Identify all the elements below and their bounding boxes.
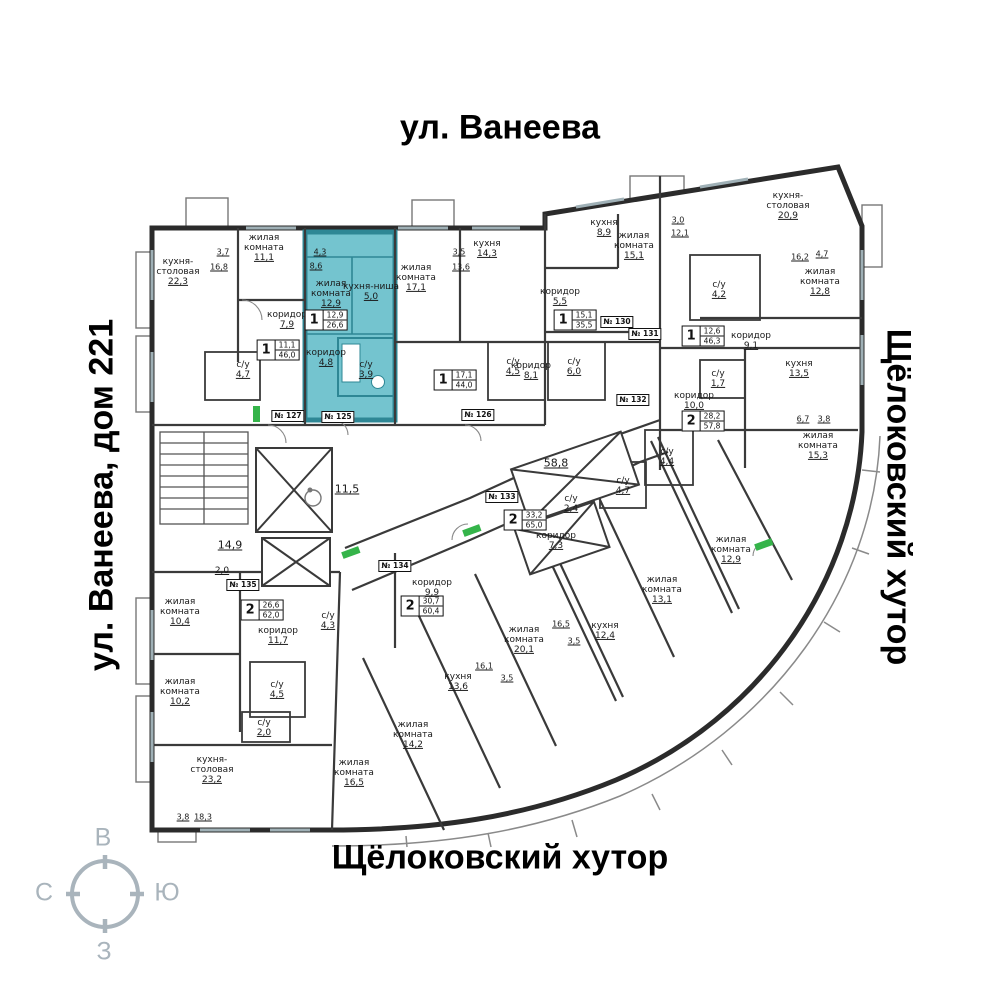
lobby-area-label: 11,5 — [335, 483, 360, 496]
room-label: жилая комната14,2 — [380, 720, 446, 750]
compass-south-letter: Ю — [154, 879, 179, 908]
dimension-label: 3,8 — [177, 813, 190, 822]
dimension-label: 3,5 — [501, 674, 514, 683]
compass-rose — [66, 855, 144, 933]
plate-131: № 131 — [628, 328, 661, 340]
badge-living: 28,2 — [701, 412, 724, 422]
room-label: с/у4,3 — [321, 611, 335, 631]
room-label: с/у4,5 — [506, 357, 520, 377]
dimension-label: 4,3 — [314, 248, 327, 257]
room-label: коридор9,1 — [731, 331, 771, 351]
badge-total: 46,3 — [701, 337, 724, 346]
room-label: кухня12,4 — [591, 621, 618, 641]
badge-living: 33,2 — [523, 511, 546, 521]
badge-rooms: 1 — [258, 341, 276, 360]
corridor-area-label: 58,8 — [544, 457, 569, 470]
room-label: жилая комната16,5 — [321, 758, 387, 788]
badge-133: 2 33,265,0 — [504, 510, 547, 531]
badge-rooms: 1 — [435, 371, 453, 390]
room-label: с/у2,0 — [257, 718, 271, 738]
room-label: жилая комната17,1 — [383, 263, 449, 293]
room-label: кухня13,6 — [444, 672, 471, 692]
room-label: кухня13,5 — [785, 359, 812, 379]
room-label: с/у3,9 — [359, 360, 373, 380]
badge-127: 1 11,146,0 — [257, 340, 300, 361]
badge-total: 26,6 — [324, 321, 347, 330]
compass-north-letter: С — [35, 879, 53, 908]
plate-134: № 134 — [378, 560, 411, 572]
badge-rooms: 2 — [683, 412, 701, 431]
plate-126: № 126 — [461, 409, 494, 421]
room-label: кухня14,3 — [473, 239, 500, 259]
badge-rooms: 2 — [242, 601, 260, 620]
plate-135: № 135 — [226, 579, 259, 591]
room-label: жилая комната10,2 — [147, 677, 213, 707]
badge-total: 65,0 — [523, 521, 546, 530]
compass-east-letter: В — [95, 824, 112, 853]
room-label: коридор9,9 — [412, 578, 452, 598]
dimension-label: 16,8 — [210, 263, 228, 272]
room-label: коридор4,8 — [306, 348, 346, 368]
dimension-label: 3,0 — [672, 216, 685, 225]
badge-living: 26,6 — [260, 601, 283, 611]
room-label: с/у4,4 — [660, 447, 674, 467]
floor-plan: ул. Ванеева ул. Ванеева, дом 221 Щёлоков… — [0, 0, 1000, 1000]
room-label: жилая комната13,1 — [629, 575, 695, 605]
dimension-label: 13,6 — [452, 263, 470, 272]
badge-126: 1 17,144,0 — [434, 370, 477, 391]
room-label: коридор7,9 — [267, 310, 307, 330]
room-label: кухня-столовая20,9 — [755, 191, 821, 221]
room-label: жилая комната20,1 — [491, 625, 557, 655]
dimension-label: 18,3 — [194, 813, 212, 822]
street-label-left: ул. Ванеева, дом 221 — [83, 319, 122, 671]
badge-living: 12,9 — [324, 311, 347, 321]
room-label: жилая комната10,4 — [147, 597, 213, 627]
dimension-label: 3,8 — [818, 415, 831, 424]
badge-130: 1 15,135,5 — [554, 310, 597, 331]
room-label: с/у1,7 — [711, 369, 725, 389]
room-label: коридор11,7 — [258, 626, 298, 646]
plate-132: № 132 — [616, 394, 649, 406]
badge-total: 35,5 — [573, 321, 596, 330]
badge-living: 17,1 — [453, 371, 476, 381]
dimension-label: 12,1 — [671, 229, 689, 238]
room-label: коридор10,0 — [674, 391, 714, 411]
badge-131: 1 12,646,3 — [682, 326, 725, 347]
room-label: жилая комната12,9 — [698, 535, 764, 565]
badge-rooms: 1 — [306, 311, 324, 330]
landing-area-label: 2,0 — [215, 566, 229, 576]
room-label: жилая комната15,3 — [785, 431, 851, 461]
street-label-bottom: Щёлоковский хутор — [332, 839, 668, 878]
badge-135: 2 26,662,0 — [241, 600, 284, 621]
badge-living: 12,6 — [701, 327, 724, 337]
room-label: с/у4,7 — [236, 360, 250, 380]
badge-rooms: 2 — [505, 511, 523, 530]
room-label: кухня-столовая23,2 — [179, 755, 245, 785]
room-label: коридор7,3 — [536, 531, 576, 551]
room-label: жилая комната15,1 — [601, 231, 667, 261]
stairs-area-label: 14,9 — [218, 539, 243, 552]
plate-125: № 125 — [321, 411, 354, 423]
room-label: с/у2,4 — [564, 494, 578, 514]
dimension-label: 3,5 — [453, 248, 466, 257]
badge-rooms: 1 — [555, 311, 573, 330]
room-label: с/у4,5 — [270, 680, 284, 700]
room-label: с/у4,7 — [616, 476, 630, 496]
badge-total: 46,0 — [276, 351, 299, 360]
badge-134: 2 30,760,4 — [401, 596, 444, 617]
room-label: кухня-столовая22,3 — [145, 257, 211, 287]
street-label-top: ул. Ванеева — [400, 109, 600, 148]
compass-west-letter: З — [96, 938, 111, 967]
badge-living: 11,1 — [276, 341, 299, 351]
dimension-label: 3,7 — [217, 248, 230, 257]
badge-living: 15,1 — [573, 311, 596, 321]
badge-rooms: 1 — [683, 327, 701, 346]
dimension-label: 16,1 — [475, 662, 493, 671]
badge-total: 44,0 — [453, 381, 476, 390]
plate-133: № 133 — [485, 491, 518, 503]
room-label: жилая комната11,1 — [231, 233, 297, 263]
badge-total: 57,8 — [701, 422, 724, 431]
room-label: с/у4,2 — [712, 280, 726, 300]
room-label: с/у6,0 — [567, 357, 581, 377]
plate-127: № 127 — [271, 410, 304, 422]
badge-rooms: 2 — [402, 597, 420, 616]
badge-132: 2 28,257,8 — [682, 411, 725, 432]
plate-130: № 130 — [600, 316, 633, 328]
badge-125[interactable]: 1 12,926,6 — [305, 310, 348, 331]
dimension-label: 6,7 — [797, 415, 810, 424]
dimension-label: 16,2 — [791, 253, 809, 262]
dimension-label: 3,5 — [568, 637, 581, 646]
badge-total: 60,4 — [420, 607, 443, 616]
street-label-right: Щёлоковский хутор — [879, 329, 918, 665]
badge-total: 62,0 — [260, 611, 283, 620]
room-label: жилая комната12,8 — [787, 267, 853, 297]
dimension-label: 8,6 — [310, 262, 323, 271]
room-label: коридор5,5 — [540, 287, 580, 307]
dimension-label: 4,7 — [816, 250, 829, 259]
